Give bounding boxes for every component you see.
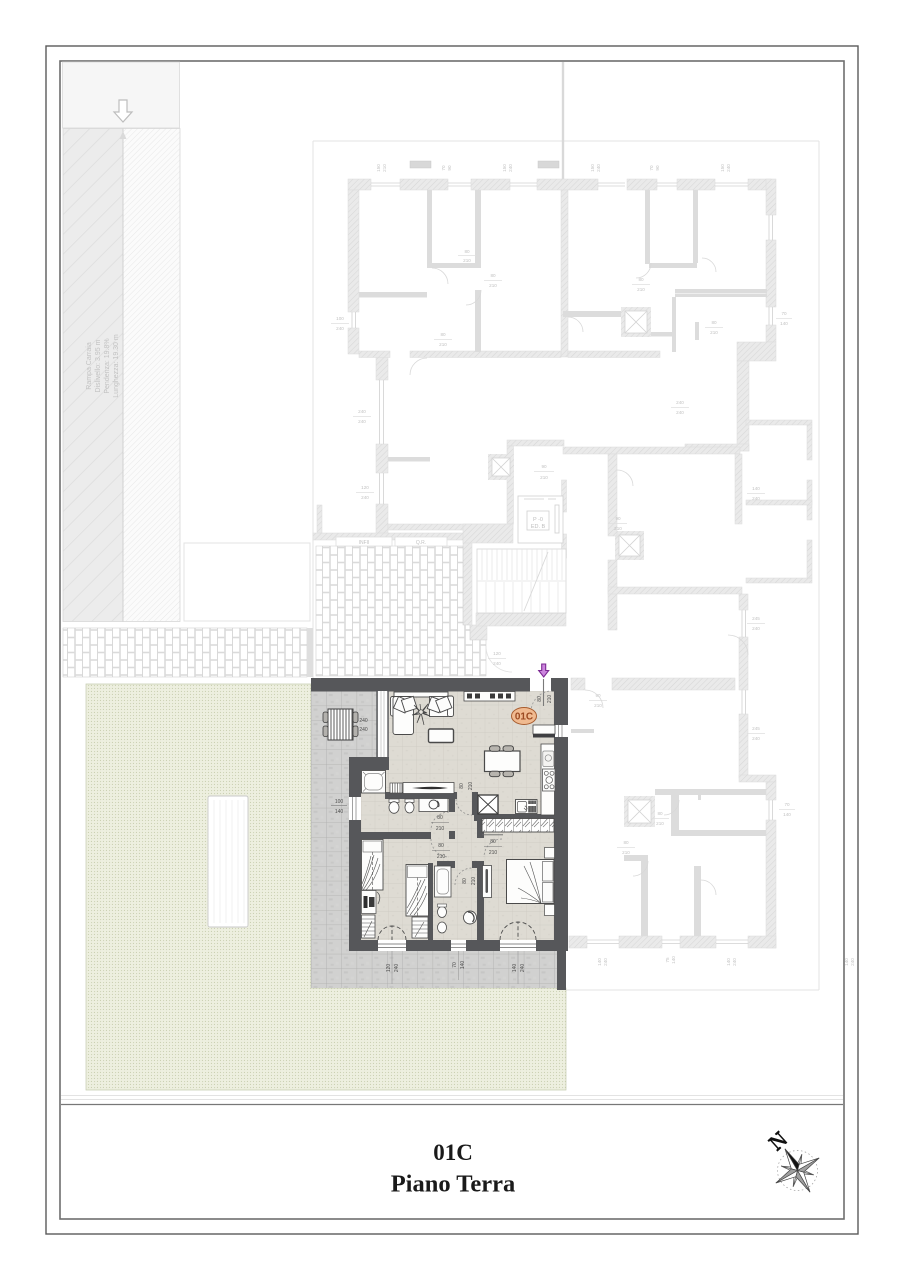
svg-text:80: 80	[623, 840, 629, 845]
svg-text:80: 80	[437, 815, 443, 821]
svg-text:80: 80	[459, 783, 465, 789]
svg-text:90: 90	[655, 165, 660, 171]
svg-text:80: 80	[464, 249, 470, 254]
svg-text:INFII: INFII	[359, 540, 370, 546]
svg-text:70: 70	[781, 311, 787, 316]
svg-text:Lunghezza: 19.30 m: Lunghezza: 19.30 m	[113, 334, 120, 398]
svg-text:140: 140	[783, 812, 791, 817]
svg-text:240: 240	[676, 410, 684, 415]
svg-text:210: 210	[710, 330, 718, 335]
svg-text:240: 240	[850, 958, 855, 966]
svg-text:240: 240	[359, 727, 368, 733]
svg-text:70: 70	[441, 165, 446, 171]
svg-text:240: 240	[726, 164, 731, 172]
svg-text:140: 140	[460, 961, 466, 970]
svg-text:100: 100	[336, 316, 344, 321]
svg-text:ED. B: ED. B	[531, 524, 546, 530]
svg-text:240: 240	[603, 958, 608, 966]
svg-text:240: 240	[394, 964, 400, 973]
svg-text:240: 240	[358, 419, 366, 424]
svg-text:240: 240	[752, 736, 760, 741]
svg-text:80: 80	[462, 878, 468, 884]
svg-text:240: 240	[520, 964, 526, 973]
svg-text:140: 140	[726, 958, 731, 966]
svg-text:90: 90	[541, 464, 547, 469]
svg-text:240: 240	[493, 661, 501, 666]
svg-text:Q.R.: Q.R.	[416, 540, 426, 546]
svg-text:210: 210	[437, 854, 446, 860]
svg-text:240: 240	[752, 626, 760, 631]
svg-text:240: 240	[358, 409, 366, 414]
svg-text:01C: 01C	[515, 712, 533, 723]
svg-text:01C: 01C	[433, 1140, 473, 1165]
svg-text:210: 210	[436, 826, 445, 832]
svg-text:80: 80	[711, 320, 717, 325]
svg-text:150: 150	[720, 164, 725, 172]
svg-text:70: 70	[649, 165, 654, 171]
svg-text:80: 80	[657, 811, 663, 816]
svg-text:140: 140	[512, 964, 518, 973]
svg-text:Piano Terra: Piano Terra	[391, 1171, 516, 1198]
svg-text:P -0: P -0	[533, 517, 543, 523]
svg-text:210: 210	[547, 695, 553, 704]
svg-text:210: 210	[540, 475, 548, 480]
svg-text:120: 120	[386, 964, 392, 973]
svg-text:80: 80	[490, 273, 496, 278]
svg-text:100: 100	[335, 799, 344, 805]
svg-text:80: 80	[537, 696, 543, 702]
svg-text:210: 210	[637, 287, 645, 292]
svg-text:150: 150	[502, 164, 507, 172]
svg-text:210: 210	[489, 283, 497, 288]
svg-text:210: 210	[594, 703, 602, 708]
svg-text:80: 80	[490, 839, 496, 845]
svg-text:70: 70	[784, 802, 790, 807]
svg-text:240: 240	[596, 164, 601, 172]
svg-text:70: 70	[452, 962, 458, 968]
svg-text:Pendenza: 19.8%: Pendenza: 19.8%	[104, 338, 111, 393]
svg-text:90: 90	[447, 165, 452, 171]
svg-text:Dislivello: 3.95 m: Dislivello: 3.95 m	[95, 339, 102, 392]
svg-text:245: 245	[752, 726, 760, 731]
svg-text:210: 210	[622, 850, 630, 855]
svg-text:120: 120	[361, 485, 369, 490]
svg-text:240: 240	[508, 164, 513, 172]
svg-text:140: 140	[671, 956, 676, 964]
svg-text:210: 210	[489, 850, 498, 856]
svg-text:80: 80	[440, 332, 446, 337]
svg-text:210: 210	[656, 821, 664, 826]
svg-text:140: 140	[597, 958, 602, 966]
svg-text:80: 80	[438, 843, 444, 849]
svg-text:210: 210	[471, 877, 477, 886]
svg-text:150: 150	[590, 164, 595, 172]
svg-text:150: 150	[376, 164, 381, 172]
svg-text:240: 240	[752, 496, 760, 501]
svg-text:140: 140	[844, 958, 849, 966]
svg-text:245: 245	[752, 616, 760, 621]
svg-text:240: 240	[732, 958, 737, 966]
svg-text:210: 210	[382, 164, 387, 172]
svg-text:140: 140	[752, 486, 760, 491]
svg-text:140: 140	[780, 321, 788, 326]
svg-text:120: 120	[493, 651, 501, 656]
svg-text:240: 240	[676, 400, 684, 405]
svg-text:240: 240	[359, 718, 368, 724]
svg-text:140: 140	[335, 809, 344, 815]
svg-text:210: 210	[439, 342, 447, 347]
svg-text:Rampa Carraia: Rampa Carraia	[86, 342, 93, 390]
svg-text:210: 210	[468, 782, 474, 791]
svg-text:240: 240	[361, 495, 369, 500]
svg-text:75: 75	[665, 957, 670, 963]
svg-text:210: 210	[463, 258, 471, 263]
svg-text:90: 90	[615, 516, 621, 521]
svg-text:210: 210	[614, 526, 622, 531]
svg-text:240: 240	[336, 326, 344, 331]
